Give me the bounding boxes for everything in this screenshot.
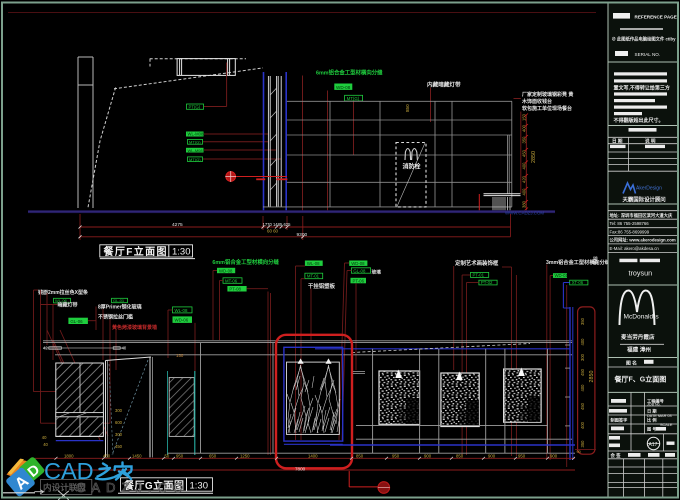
- svg-text:MT-06: MT-06: [225, 278, 238, 283]
- svg-text:CADZJ.CO: CADZJ.CO: [76, 480, 189, 495]
- svg-text:450: 450: [522, 149, 527, 157]
- svg-text:WL-M08: WL-M08: [188, 132, 204, 137]
- svg-text:400: 400: [580, 384, 585, 392]
- svg-text:消防栓: 消防栓: [403, 163, 421, 171]
- svg-text:黄色烤漆玻璃背景墙: 黄色烤漆玻璃背景墙: [112, 324, 157, 331]
- svg-text:420: 420: [522, 175, 527, 183]
- svg-text:SERIAL NO.: SERIAL NO.: [635, 52, 661, 57]
- svg-text:比 例: 比 例: [647, 417, 657, 424]
- svg-text:PT-01: PT-01: [473, 273, 485, 278]
- svg-text:SCALE: SCALE: [660, 423, 673, 427]
- svg-text:6mm铝合金工型材横向分缝: 6mm铝合金工型材横向分缝: [316, 69, 383, 77]
- svg-text:850: 850: [456, 453, 464, 458]
- svg-text:地址: 深圳市福田区滨河大道大庆: 地址: 深圳市福田区滨河大道大庆: [610, 212, 673, 219]
- svg-text:600: 600: [115, 420, 123, 425]
- svg-text:MT-01: MT-01: [307, 274, 320, 279]
- svg-text:定制艺术画装饰框: 定制艺术画装饰框: [455, 259, 499, 267]
- svg-text:4275: 4275: [172, 222, 183, 228]
- svg-text:6mm铝合金工型材横向分缝: 6mm铝合金工型材横向分缝: [212, 258, 279, 266]
- svg-text:400: 400: [522, 162, 527, 170]
- svg-text:troysun: troysun: [629, 268, 653, 277]
- svg-text:GL-06: GL-06: [70, 319, 83, 324]
- svg-text:木饰面收钱台: 木饰面收钱台: [521, 98, 552, 105]
- svg-text:50: 50: [165, 453, 170, 458]
- svg-text:WD-08: WD-08: [351, 261, 365, 266]
- svg-text:餐厅F、G立面图: 餐厅F、G立面图: [614, 375, 667, 384]
- svg-text:图 名: 图 名: [626, 359, 637, 366]
- svg-text:福建 漳州: 福建 漳州: [626, 345, 651, 353]
- svg-text:950: 950: [392, 453, 400, 458]
- svg-text:WD-08: WD-08: [336, 85, 351, 90]
- svg-text:WL-M08: WL-M08: [188, 148, 204, 153]
- svg-text:公司网址: www.akerodesign.com: 公司网址: www.akerodesign.com: [610, 236, 676, 243]
- svg-text:400: 400: [580, 421, 585, 429]
- svg-text:REFERENCE PAGE: REFERENCE PAGE: [635, 15, 677, 20]
- svg-text:镜面2mm拉丝色X型条: 镜面2mm拉丝色X型条: [38, 289, 88, 296]
- svg-text:3mm铝合金工型材横向分缝: 3mm铝合金工型材横向分缝: [546, 258, 611, 266]
- svg-text:950: 950: [518, 453, 526, 458]
- svg-text:60 60: 60 60: [267, 228, 279, 233]
- svg-text:制图签字: 制图签字: [611, 417, 628, 424]
- svg-text:PT-02: PT-02: [481, 280, 493, 285]
- svg-text:PT-08: PT-08: [229, 287, 241, 292]
- svg-text:软包施工单位现场餐台: 软包施工单位现场餐台: [522, 105, 572, 112]
- svg-text:Fax:86 755-8699999: Fax:86 755-8699999: [610, 230, 650, 235]
- svg-text:40: 40: [43, 442, 48, 447]
- svg-text:厂家定制玻璃钢彩凳 黄: 厂家定制玻璃钢彩凳 黄: [522, 91, 573, 98]
- svg-text:40: 40: [42, 435, 47, 440]
- svg-text:1250: 1250: [240, 453, 250, 458]
- svg-text:McDonald`s: McDonald`s: [624, 314, 660, 321]
- svg-text:暗藏灯带: 暗藏灯带: [58, 302, 78, 309]
- svg-text:150: 150: [522, 113, 527, 121]
- svg-text:1400: 1400: [308, 453, 318, 458]
- svg-text:MT(G): MT(G): [189, 157, 201, 162]
- svg-text:内藏暗藏灯带: 内藏暗藏灯带: [427, 81, 461, 89]
- svg-text:300: 300: [580, 353, 585, 361]
- svg-text:90: 90: [577, 450, 581, 454]
- svg-text:2850: 2850: [531, 151, 537, 163]
- svg-text:GL-08: GL-08: [353, 268, 366, 273]
- svg-text:WD-06: WD-06: [175, 318, 189, 323]
- svg-text:MT(G): MT(G): [347, 96, 360, 101]
- svg-text:玻璃: 玻璃: [372, 268, 382, 275]
- svg-text:WD-01: WD-01: [555, 273, 569, 278]
- svg-text:A17: A17: [649, 442, 658, 448]
- svg-text:GL-01: GL-01: [113, 298, 125, 303]
- svg-text:Tel: 86 755-2598766: Tel: 86 755-2598766: [610, 221, 650, 226]
- svg-text:图 号: 图 号: [647, 426, 657, 433]
- svg-text:150: 150: [176, 353, 184, 358]
- svg-text:E-Mail: akero@akdesa.cn: E-Mail: akero@akdesa.cn: [610, 246, 660, 251]
- svg-text:WL-08: WL-08: [307, 261, 320, 266]
- svg-text:450: 450: [115, 444, 123, 449]
- svg-text:PT(G): PT(G): [189, 104, 201, 109]
- svg-text:900: 900: [488, 453, 496, 458]
- svg-text:1:30: 1:30: [172, 247, 191, 258]
- svg-text:麦当劳丹霞店: 麦当劳丹霞店: [621, 333, 655, 341]
- svg-text:1:30: 1:30: [190, 481, 209, 492]
- svg-text:350: 350: [580, 440, 585, 448]
- svg-text:850: 850: [356, 453, 364, 458]
- svg-text:450: 450: [580, 402, 585, 410]
- svg-text:400: 400: [580, 338, 585, 346]
- svg-text:8厚Primer钢化玻璃: 8厚Primer钢化玻璃: [98, 303, 142, 310]
- svg-text:MT(G): MT(G): [189, 139, 201, 144]
- svg-text:PT-06: PT-06: [353, 278, 365, 283]
- svg-text:坐标: 坐标: [592, 256, 599, 265]
- svg-text:会 签: 会 签: [611, 452, 622, 459]
- svg-text:300: 300: [115, 408, 123, 413]
- svg-text:WWW.CADZJ.COM: WWW.CADZJ.COM: [505, 210, 544, 215]
- svg-text:1450: 1450: [132, 453, 142, 458]
- svg-text:AkerDesign: AkerDesign: [636, 186, 662, 192]
- svg-text:7800: 7800: [295, 467, 306, 472]
- svg-text:900: 900: [550, 453, 558, 458]
- svg-text:日 期: 日 期: [612, 137, 623, 144]
- svg-text:餐厅F立面图: 餐厅F立面图: [103, 245, 167, 258]
- svg-text:350: 350: [580, 317, 585, 325]
- svg-text:干挂铝塑板: 干挂铝塑板: [308, 282, 336, 290]
- svg-text:置文写,不得转让给第三方: 置文写,不得转让给第三方: [614, 84, 670, 91]
- svg-text:WL-08: WL-08: [175, 308, 188, 313]
- svg-text:JOB No.: JOB No.: [647, 402, 661, 406]
- svg-text:9300: 9300: [297, 232, 308, 238]
- svg-text:天霸国际设计顾问: 天霸国际设计顾问: [623, 195, 666, 203]
- svg-text:⊘ 此图纸作品电脑绘图文件 ctiby: ⊘ 此图纸作品电脑绘图文件 ctiby: [612, 36, 677, 43]
- svg-text:650: 650: [209, 453, 217, 458]
- svg-text:950: 950: [176, 453, 184, 458]
- svg-text:850: 850: [405, 104, 410, 112]
- svg-text:不得翻版超出此尺寸。: 不得翻版超出此尺寸。: [614, 117, 664, 124]
- svg-text:2850: 2850: [589, 371, 595, 383]
- svg-text:WD-08: WD-08: [219, 268, 233, 273]
- svg-text:300: 300: [115, 432, 123, 437]
- svg-text:450: 450: [580, 368, 585, 376]
- svg-text:900: 900: [424, 453, 432, 458]
- svg-text:说 明: 说 明: [645, 137, 656, 144]
- svg-text:XT-06: XT-06: [572, 280, 584, 285]
- svg-text:1770 1485 625: 1770 1485 625: [263, 222, 292, 227]
